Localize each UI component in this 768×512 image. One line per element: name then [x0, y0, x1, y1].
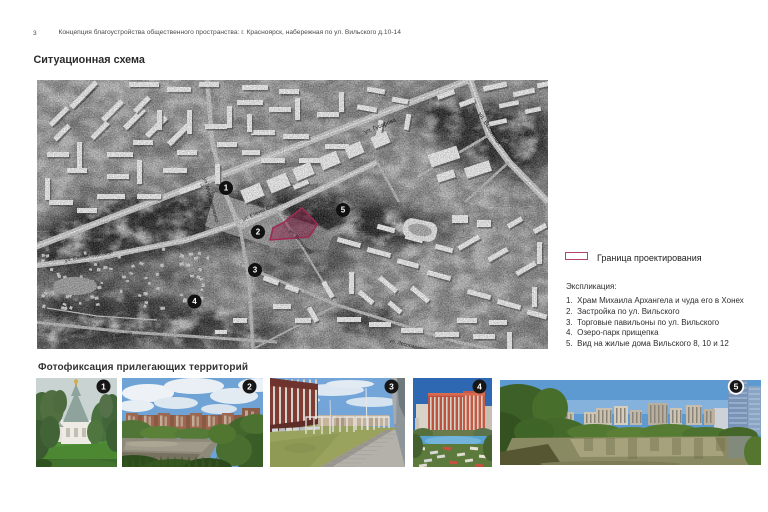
svg-text:3: 3 — [253, 266, 258, 275]
svg-text:2: 2 — [256, 228, 261, 237]
svg-text:2: 2 — [247, 381, 252, 391]
svg-text:3: 3 — [389, 381, 394, 391]
svg-text:5: 5 — [341, 206, 346, 215]
svg-text:5: 5 — [733, 381, 738, 391]
svg-text:1: 1 — [224, 184, 229, 193]
svg-text:1: 1 — [101, 381, 106, 391]
svg-text:4: 4 — [192, 297, 197, 306]
svg-text:4: 4 — [477, 381, 482, 391]
